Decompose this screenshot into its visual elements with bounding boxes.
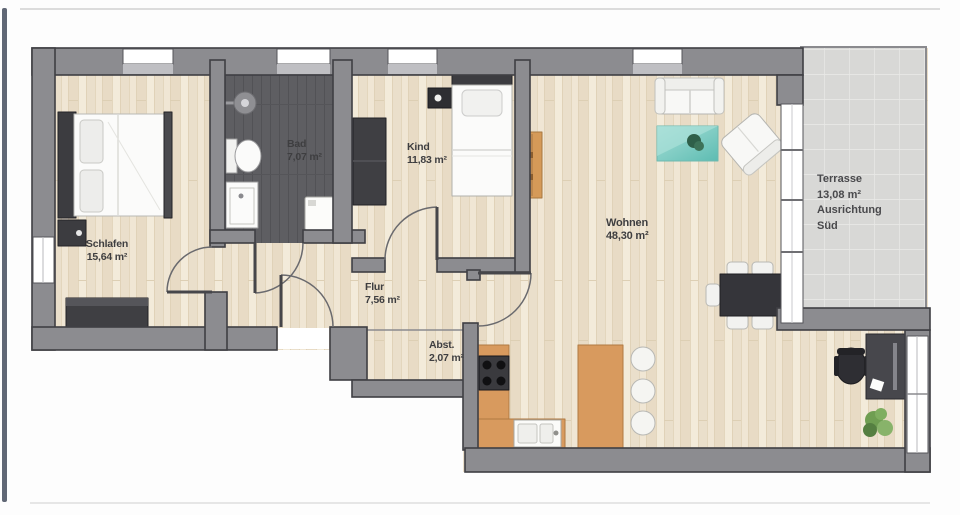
room-label-flur: Flur 7,56 m² xyxy=(365,281,400,307)
window-schlafen-top xyxy=(123,49,173,74)
bathroom-sink xyxy=(226,182,258,228)
wardrobe xyxy=(353,118,386,205)
orientation-label: Ausrichtung xyxy=(817,203,882,219)
wall-abst-bottom xyxy=(352,380,475,397)
kitchen-island xyxy=(578,345,623,449)
room-label-wohnen: Wohnen 48,30 m² xyxy=(606,217,648,243)
room-area: 7,56 m² xyxy=(365,294,400,307)
bar-stools xyxy=(631,347,655,435)
monitor xyxy=(893,343,897,390)
room-label-kind: Kind 11,83 m² xyxy=(407,141,447,167)
room-name: Schlafen xyxy=(72,238,142,251)
wall-kind-wohnen xyxy=(515,60,530,272)
wall-bottom-main xyxy=(465,448,930,472)
dining-table xyxy=(720,274,782,316)
wall-schlafen-pillar xyxy=(205,292,227,350)
single-bed xyxy=(452,70,512,196)
window-terrace-band xyxy=(781,104,803,323)
window-right xyxy=(907,336,928,453)
window-bad-top xyxy=(277,49,330,74)
wall-schlafen-bad xyxy=(210,60,225,247)
coffee-table xyxy=(657,126,718,162)
kitchen-sink xyxy=(514,420,561,447)
wall-corner-terrace xyxy=(777,75,803,105)
wall-kind-bottom-b xyxy=(437,258,525,272)
toilet xyxy=(226,139,261,173)
wall-entry-block xyxy=(330,327,367,380)
room-label-schlafen: Schlafen 15,64 m² xyxy=(72,238,142,264)
room-name: Flur xyxy=(365,281,400,294)
wall-kitchen-left xyxy=(463,323,478,450)
room-area: 15,64 m² xyxy=(72,251,142,264)
room-name: Kind xyxy=(407,141,447,154)
entrance-threshold xyxy=(278,328,329,349)
double-bed xyxy=(58,112,172,218)
window-left xyxy=(33,237,54,283)
floor-plan-page: Schlafen 15,64 m² Bad 7,07 m² Kind 11,83… xyxy=(0,0,960,515)
desk xyxy=(866,334,906,399)
stove xyxy=(479,356,509,390)
dresser xyxy=(66,298,148,328)
floor-plan-drawing xyxy=(0,0,960,515)
window-kind-top xyxy=(388,49,437,74)
room-area: 7,07 m² xyxy=(287,151,322,164)
room-label-abstellraum: Abst. 2,07 m² xyxy=(429,339,464,365)
orientation-value: Süd xyxy=(817,219,882,235)
washing-machine xyxy=(305,197,334,230)
wall-bad-kind xyxy=(333,60,352,243)
room-label-terrasse: Terrasse 13,08 m² Ausrichtung Süd xyxy=(817,172,882,234)
wall-bottom-left xyxy=(32,327,277,350)
room-name: Bad xyxy=(287,138,322,151)
wall-left xyxy=(32,48,55,350)
room-area: 48,30 m² xyxy=(606,230,648,243)
wall-kind-bottom-a xyxy=(352,258,385,272)
room-label-bad: Bad 7,07 m² xyxy=(287,138,322,164)
room-area: 11,83 m² xyxy=(407,154,447,167)
window-wohnen-top xyxy=(633,49,682,74)
room-name: Terrasse xyxy=(817,172,882,188)
room-area: 13,08 m² xyxy=(817,188,882,204)
sofa xyxy=(655,78,724,114)
room-name: Wohnen xyxy=(606,217,648,230)
room-area: 2,07 m² xyxy=(429,352,464,365)
room-name: Abst. xyxy=(429,339,464,352)
wall-bad-bottom-a xyxy=(210,230,255,243)
